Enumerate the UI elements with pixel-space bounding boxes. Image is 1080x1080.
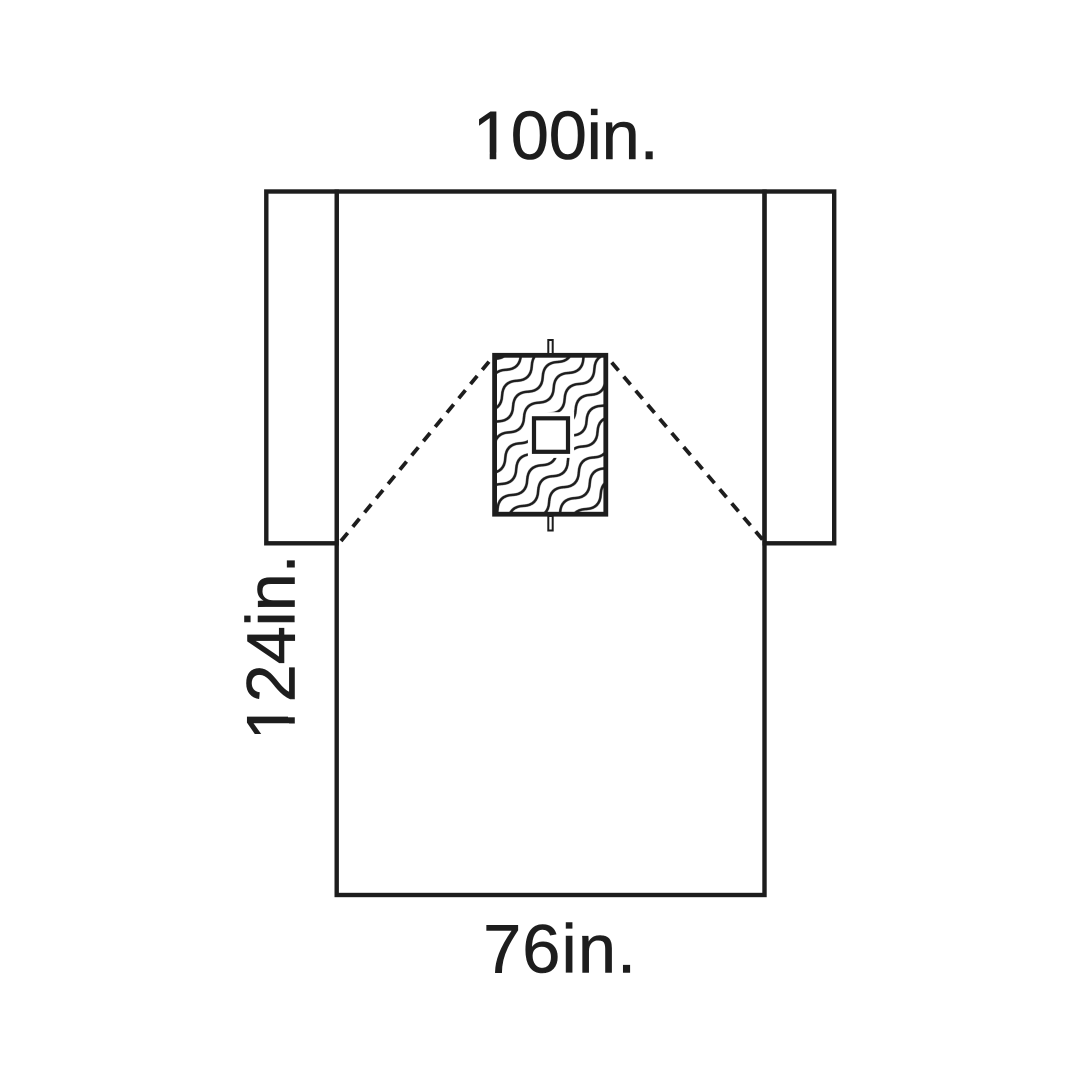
svg-text:76in.: 76in. [483, 910, 637, 987]
svg-text:124in.: 124in. [232, 555, 309, 741]
svg-text:100in.: 100in. [473, 97, 659, 174]
